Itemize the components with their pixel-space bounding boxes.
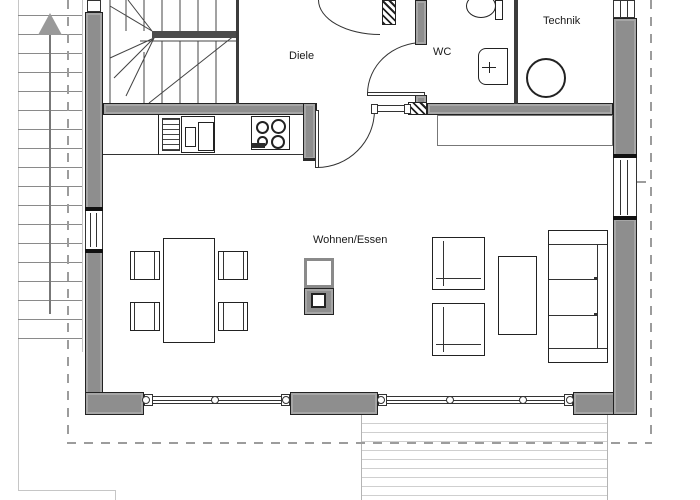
fireplace-firebox	[311, 293, 326, 308]
wc-door-swing	[367, 42, 423, 94]
wc-door-leaf	[367, 92, 425, 96]
room-label-wohnen-essen: Wohnen/Essen	[313, 234, 387, 247]
partition-cap-right	[404, 104, 411, 114]
kitchen-sink-basin-large	[198, 122, 214, 151]
exterior-stair-walkline	[49, 34, 51, 314]
window-joint	[211, 396, 219, 404]
living-door-swing	[317, 110, 375, 168]
up-arrow-icon	[38, 13, 62, 35]
stove-burner	[256, 121, 269, 134]
kitchen-counter-divider	[158, 115, 159, 155]
stove-burner	[271, 119, 286, 134]
living-door-leaf	[315, 110, 319, 168]
room-label-diele: Diele	[289, 50, 314, 63]
window-joint	[519, 396, 527, 404]
dining-chair	[218, 302, 248, 331]
wall-left-upper	[85, 12, 103, 212]
dining-table	[163, 238, 215, 343]
wall-wc-technik	[514, 0, 518, 104]
wall-top-kitchen	[103, 103, 317, 115]
wall-bottom-pier	[290, 392, 378, 415]
overhang-dash-bottom	[67, 442, 652, 444]
window-right-cap-bottom	[613, 216, 637, 220]
window-bottom-right	[378, 396, 573, 404]
armchair	[432, 303, 485, 356]
stove-knob-strip	[252, 143, 265, 148]
wall-stair-diele	[236, 0, 239, 104]
wc-tap	[489, 62, 490, 73]
sideboard	[437, 115, 613, 146]
window-right-cap-top	[613, 154, 637, 158]
exterior-stair-edge	[82, 0, 83, 352]
sofa	[548, 230, 608, 363]
window-joint	[566, 396, 574, 404]
interior-stair	[104, 0, 237, 103]
window-joint	[282, 396, 290, 404]
dining-chair	[130, 251, 160, 280]
window-right-top	[613, 0, 635, 18]
wall-corner-bottom-left	[85, 392, 144, 415]
boiler-tank	[526, 58, 566, 98]
room-label-technik: Technik	[543, 15, 580, 28]
entrance-door-leaf	[382, 0, 396, 25]
window-joint	[142, 396, 150, 404]
wall-top-right	[427, 103, 613, 115]
window-right	[613, 157, 637, 218]
window-left-cap-top	[85, 207, 103, 211]
wall-diele-wc-upper	[415, 0, 427, 45]
wc-toilet-tank	[495, 0, 503, 20]
terrace-decking	[361, 415, 608, 500]
wc-toilet-bowl	[466, 0, 496, 18]
overhang-dash-left	[67, 0, 69, 440]
overhang-dash-right	[650, 0, 652, 443]
site-line-stub	[115, 490, 116, 500]
wall-left-lower	[85, 248, 103, 415]
wall-right-upper	[613, 18, 637, 157]
kitchen-sink-basin-small	[185, 127, 196, 147]
kitchen-drawer-unit	[162, 118, 180, 151]
coffee-table	[498, 256, 537, 335]
wall-right-lower	[613, 218, 637, 415]
room-label-wc: WC	[433, 46, 451, 59]
dining-chair	[218, 251, 248, 280]
window-left-cap-bottom	[85, 249, 103, 253]
stove-burner	[271, 135, 285, 149]
window-joint	[377, 396, 385, 404]
fireplace-top	[304, 258, 334, 288]
site-line-bottom	[18, 490, 116, 491]
armchair	[432, 237, 485, 290]
jamb-cap-top-left	[87, 0, 101, 12]
floor-plan: Diele WC Technik Wohnen/Essen	[0, 0, 700, 500]
window-left	[85, 210, 103, 250]
window-joint	[446, 396, 454, 404]
partition-cap-left	[371, 104, 378, 114]
dining-chair	[130, 302, 160, 331]
entrance-door-swing	[318, 0, 380, 35]
section-tick	[637, 181, 652, 183]
